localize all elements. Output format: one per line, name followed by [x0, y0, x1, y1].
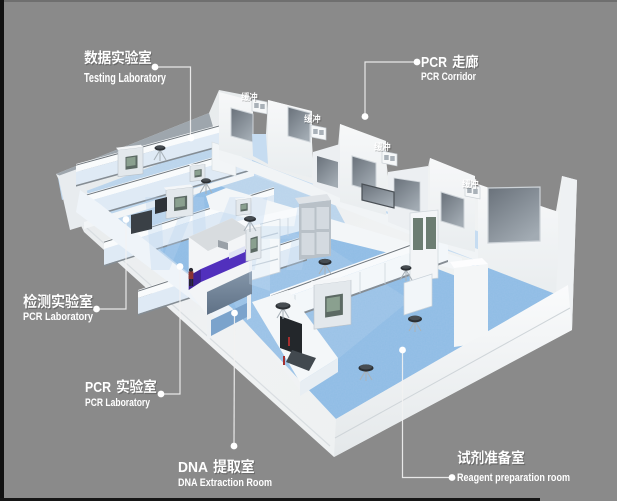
svg-text:PCR Laboratory: PCR Laboratory — [23, 311, 94, 323]
svg-text:Testing Laboratory: Testing Laboratory — [84, 71, 166, 85]
svg-text:PCR: PCR — [85, 380, 111, 396]
svg-text:DNA Extraction Room: DNA Extraction Room — [178, 477, 272, 489]
svg-text:PCR Laboratory: PCR Laboratory — [85, 397, 150, 409]
svg-text:PCR: PCR — [421, 55, 447, 71]
svg-text:PCR Corridor: PCR Corridor — [421, 71, 476, 83]
svg-text:DNA: DNA — [178, 460, 208, 476]
svg-text:Reagent preparation room: Reagent preparation room — [457, 472, 570, 484]
